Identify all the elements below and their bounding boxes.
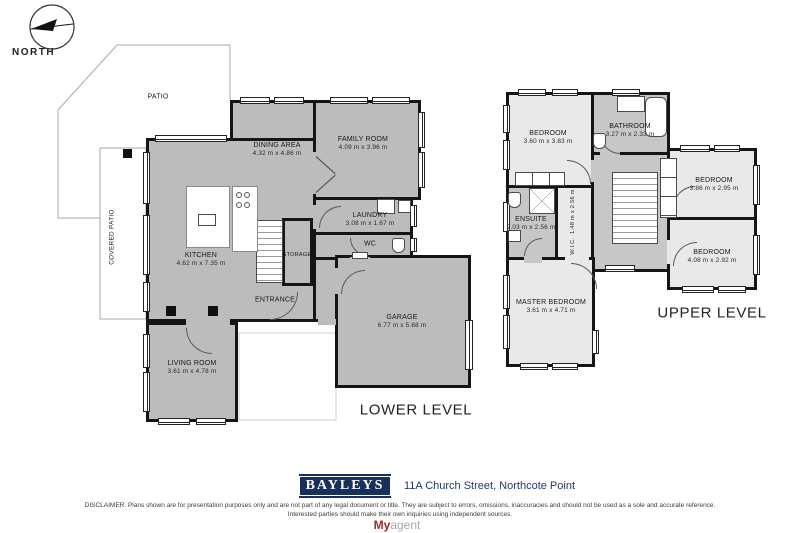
room-dims: 3.27 m x 2.33 m	[606, 131, 655, 140]
window	[503, 315, 510, 349]
room-label-bedroom-tr: BEDROOM 3.86 m x 2.95 m	[690, 176, 739, 194]
post	[208, 306, 218, 316]
window	[418, 112, 425, 148]
window	[753, 235, 760, 275]
opening-garage	[332, 268, 341, 294]
window	[552, 363, 578, 370]
room-dims: 4.09 m x 3.96 m	[338, 144, 388, 153]
window	[143, 372, 150, 412]
burner-icon	[236, 192, 242, 198]
room-name: BATHROOM	[609, 123, 651, 130]
window	[680, 145, 710, 152]
window	[552, 89, 578, 96]
window	[682, 286, 714, 293]
lower-level-title: LOWER LEVEL	[360, 402, 472, 419]
room-name: BEDROOM	[529, 130, 567, 137]
window	[612, 89, 640, 96]
property-address: 11A Church Street, Northcote Point	[404, 480, 575, 492]
opening-master	[565, 257, 589, 263]
myagent-logo: Myagent	[371, 516, 423, 533]
room-label-covered-patio: COVERED PATIO	[109, 209, 116, 265]
room-label-bedroom-br: BEDROOM 4.08 m x 2.92 m	[688, 248, 737, 266]
window	[605, 265, 635, 272]
window	[753, 165, 760, 205]
window	[714, 145, 740, 152]
room-dims: 4.08 m x 2.92 m	[688, 257, 737, 266]
window	[143, 152, 150, 204]
window	[143, 282, 150, 312]
window	[410, 205, 417, 227]
room-dims: 3.86 m x 2.95 m	[690, 185, 739, 194]
toilet	[593, 133, 606, 149]
room-label-storage: STORAGE	[283, 252, 312, 260]
floorplan-page: NORTH	[0, 0, 800, 533]
room-dims: 3.08 m x 1.67 m	[346, 220, 395, 229]
stairs	[256, 220, 283, 283]
post	[166, 306, 176, 316]
upper-level-title: UPPER LEVEL	[657, 305, 766, 322]
window	[518, 89, 546, 96]
opening-ensuite	[524, 257, 542, 263]
room-name: ENSUITE	[515, 216, 547, 223]
vanity	[617, 96, 645, 112]
room-name: W.I.C.	[570, 238, 576, 255]
post	[123, 149, 132, 158]
room-label-wc: WC	[364, 239, 376, 248]
room-dims: 3.61 m x 4.78 m	[168, 368, 217, 377]
myagent-logo-bold: My	[374, 518, 391, 532]
room-name: ENTRANCE	[255, 296, 295, 303]
room-name: BEDROOM	[693, 249, 731, 256]
stairs	[612, 172, 658, 244]
room-label-bathroom: BATHROOM 3.27 m x 2.33 m	[606, 122, 655, 140]
window	[503, 140, 510, 170]
garage-door	[465, 320, 473, 370]
room-label-family: FAMILY ROOM 4.09 m x 3.96 m	[338, 135, 388, 153]
window	[503, 275, 510, 309]
room-name: DINING AREA	[253, 142, 300, 149]
laundry-sink	[398, 200, 411, 213]
room-dims: 4.62 m x 7.35 m	[177, 260, 226, 269]
window	[158, 418, 190, 425]
room-label-ensuite: ENSUITE 2.03 m x 2.56 m	[507, 215, 556, 233]
sink	[198, 214, 216, 226]
room-name: COVERED PATIO	[109, 209, 116, 265]
window	[330, 97, 368, 104]
window	[240, 97, 270, 104]
shower	[529, 188, 555, 214]
opening-bedroom-br	[667, 240, 673, 264]
myagent-watermark: Myagent	[371, 516, 423, 533]
room-label-master: MASTER BEDROOM 3.61 m x 4.71 m	[516, 298, 586, 316]
room-label-laundry: LAUNDRY 3.08 m x 1.67 m	[346, 211, 395, 229]
window	[155, 135, 227, 142]
room-dims: 3.61 m x 4.71 m	[516, 307, 586, 316]
room-name: LAUNDRY	[353, 212, 388, 219]
window	[718, 286, 746, 293]
room-label-dining: DINING AREA 4.32 m x 4.86 m	[253, 141, 302, 159]
room-name: STORAGE	[283, 252, 312, 258]
bayleys-logo-frame: BAYLEYS	[299, 476, 392, 496]
window	[520, 363, 548, 370]
room-label-patio: PATIO	[148, 92, 169, 101]
window	[418, 152, 425, 188]
window	[196, 418, 226, 425]
room-label-garage: GARAGE 6.77 m x 5.68 m	[378, 313, 427, 331]
room-dims: 2.03 m x 2.56 m	[507, 224, 556, 233]
window	[274, 97, 304, 104]
room-name: KITCHEN	[185, 252, 217, 259]
room-label-bedroom-tl: BEDROOM 3.60 m x 3.83 m	[524, 129, 573, 147]
window	[372, 97, 410, 104]
room-label-wic: W.I.C. 1.48 m x 2.56 m	[570, 189, 576, 254]
room-dims: 3.60 m x 3.83 m	[524, 138, 573, 147]
bayleys-logo-text: BAYLEYS	[306, 478, 385, 494]
toilet	[508, 192, 521, 208]
sink	[352, 252, 368, 259]
cooktop	[234, 190, 256, 212]
room-name: BEDROOM	[695, 177, 733, 184]
room-label-entrance: ENTRANCE	[255, 295, 295, 304]
window	[410, 238, 417, 252]
room-dims: 6.77 m x 5.68 m	[378, 322, 427, 331]
bayleys-logo: BAYLEYS	[299, 474, 391, 498]
opening-living	[186, 319, 230, 328]
room-name: FAMILY ROOM	[338, 136, 388, 143]
room-name: PATIO	[148, 93, 169, 100]
opening-bedroom-tl	[591, 160, 597, 182]
window	[592, 330, 599, 354]
window	[503, 105, 510, 133]
room-label-kitchen: KITCHEN 4.62 m x 7.35 m	[177, 251, 226, 269]
room-name: LIVING ROOM	[168, 360, 217, 367]
room-name: MASTER BEDROOM	[516, 299, 586, 306]
opening-front-door	[318, 319, 336, 325]
room-dims: 4.32 m x 4.86 m	[253, 150, 302, 159]
room-name: GARAGE	[386, 314, 417, 321]
myagent-logo-rest: agent	[390, 518, 420, 532]
burner-icon	[236, 202, 242, 208]
window	[143, 215, 150, 275]
burner-icon	[244, 192, 250, 198]
wardrobe	[515, 172, 565, 186]
toilet	[392, 238, 405, 253]
room-name: WC	[364, 240, 376, 247]
window	[143, 334, 150, 368]
wardrobe	[660, 158, 677, 218]
burner-icon	[244, 202, 250, 208]
room-dims: 1.48 m x 2.56 m	[570, 189, 576, 234]
room-label-living: LIVING ROOM 3.61 m x 4.78 m	[168, 359, 217, 377]
compass-label: NORTH	[12, 47, 55, 58]
